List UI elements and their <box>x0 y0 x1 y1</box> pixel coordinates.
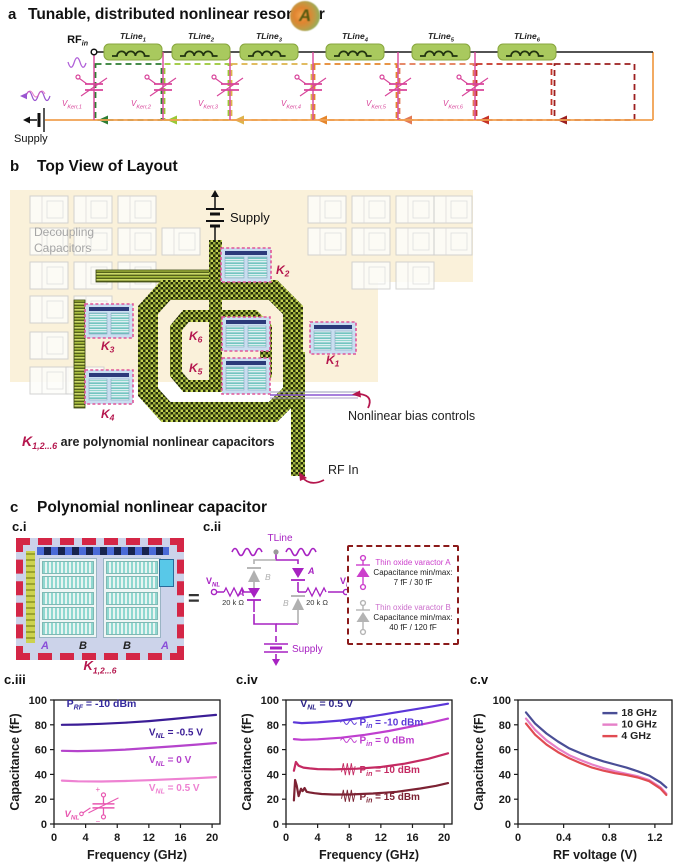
x-axis-label: Frequency (GHz) <box>87 848 187 862</box>
label-rest: = 0.5 V <box>165 783 200 794</box>
legend-label: 10 GHz <box>621 719 657 731</box>
k-block-fingers <box>248 367 266 390</box>
y-tick-label: 80 <box>35 720 47 732</box>
equivalent-circuit: TLine VNL VNL 20 k Ω 20 k Ω B A A B Supp… <box>204 530 356 670</box>
label-a-right: A <box>307 566 315 576</box>
legend-a-line2: Capacitance min/max: <box>373 568 453 578</box>
k-block-fingers <box>248 326 266 347</box>
label-rest: = 0 dBm <box>372 735 414 746</box>
decoupling-label-1: Decoupling <box>34 225 94 239</box>
varactor-label: VKerr,4 <box>281 99 301 111</box>
k-label: K4 <box>101 407 115 423</box>
label-sub: 3 <box>110 345 115 355</box>
panel-c-title: Polynomial nonlinear capacitor <box>37 499 267 517</box>
varactor-label: VKerr,6 <box>443 99 464 111</box>
label-sub: Kerr,1 <box>67 105 82 111</box>
label-sub: NL <box>156 733 165 740</box>
rf-feed <box>291 352 305 476</box>
left-metal-strip <box>74 300 85 408</box>
y-tick-label: 40 <box>499 769 511 781</box>
ci-caption-sub: 1,2...6 <box>93 666 117 676</box>
inset-label: VNL <box>64 809 79 822</box>
civ-label: c.iv <box>236 672 258 687</box>
decap-cell <box>396 228 434 255</box>
power-wave-icon <box>341 738 357 742</box>
output-arrow <box>20 93 27 99</box>
varactor-lead <box>80 79 88 85</box>
wire-left-branch-grey <box>254 560 276 564</box>
x-tick-label: 0.8 <box>602 832 617 844</box>
varactor-b-left <box>247 568 261 582</box>
x-tick-label: 0.4 <box>556 832 572 844</box>
varactor-terminal <box>76 75 80 79</box>
varactor-b-icon <box>353 599 373 637</box>
label-sub: 1 <box>335 359 340 369</box>
y-tick-label: 20 <box>267 794 279 806</box>
y-tick-label: 20 <box>35 794 47 806</box>
tline-label: TLine1 <box>120 31 146 44</box>
label-sub: Kerr,3 <box>203 105 219 111</box>
legend-b-line3: 40 fF / 120 fF <box>373 623 453 633</box>
kerr-section-box <box>555 64 635 120</box>
label-a-left: A <box>237 588 245 598</box>
annotation: VNL = 0.5 V <box>149 783 200 796</box>
legend-b-line2: Capacitance min/max: <box>373 613 453 623</box>
axes-frame <box>286 700 452 824</box>
kerr-section-box <box>96 64 162 120</box>
bias-arrow <box>360 394 370 408</box>
label-rest: = -10 dBm <box>372 717 423 728</box>
legend-entry-b: Thin oxide varactor B Capacitance min/ma… <box>353 599 453 637</box>
letter-b1: B <box>79 640 87 652</box>
label-b-right: B <box>283 598 289 608</box>
k-block-routing <box>226 361 266 365</box>
rf-in-label: RF In <box>328 463 359 477</box>
varactor-label: VKerr,1 <box>62 99 82 111</box>
label-b-left: B <box>265 572 271 582</box>
x-tick-label: 20 <box>206 832 218 844</box>
label-sub: NL <box>156 761 165 768</box>
decap-cell <box>30 262 68 289</box>
decap-cell <box>396 262 434 289</box>
y-tick-label: 40 <box>267 769 279 781</box>
y-axis-label: Capacitance (fF) <box>472 713 486 810</box>
terminal <box>101 815 105 819</box>
tline-node <box>273 549 278 554</box>
ci-caption: K1,2...6 <box>16 658 184 676</box>
varactor-legend: Thin oxide varactor A Capacitance min/ma… <box>347 545 459 645</box>
resistor-right <box>306 588 326 596</box>
tline-label: TLine5 <box>428 31 455 44</box>
supply-label: Supply <box>292 644 323 655</box>
k-block-fingers <box>111 313 129 334</box>
label-base: TLine <box>428 31 451 41</box>
label-base: TLine <box>120 31 143 41</box>
y-axis-label: Capacitance (fF) <box>8 713 22 810</box>
chip-layout: DecouplingCapacitorsSupplyK2K3K4K6K5K1No… <box>8 182 480 490</box>
k-block-fingers <box>111 379 129 400</box>
x-tick-label: 0 <box>515 832 521 844</box>
input-signal-icon <box>68 58 86 68</box>
x-axis-label: Frequency (GHz) <box>319 848 419 862</box>
decap-cell <box>396 196 434 223</box>
decap-cell <box>30 196 68 223</box>
decap-cell <box>30 367 68 394</box>
legend-a-title: Thin oxide varactor A <box>373 558 453 568</box>
equals-sign: = <box>188 588 200 611</box>
chart-svg: 048121620020406080100Frequency (GHz)Capa… <box>238 690 462 864</box>
data-curve <box>294 753 448 770</box>
label-sub: 5 <box>451 38 455 44</box>
minus-sign: − <box>95 817 100 826</box>
varactor-terminal <box>212 75 216 79</box>
ciii-label: c.iii <box>4 672 26 687</box>
rf-in-label: RFin <box>67 34 88 48</box>
x-tick-label: 16 <box>406 832 418 844</box>
vnl-terminal-left <box>211 589 216 594</box>
label-base: TLine <box>514 31 537 41</box>
label-sub: NL <box>307 704 316 711</box>
k-block-routing <box>225 251 267 255</box>
label-sub: NL <box>71 814 80 821</box>
badge-a: A <box>290 1 320 31</box>
decap-cell <box>118 228 156 255</box>
power-wave-icon <box>342 790 356 802</box>
decap-cell <box>74 196 112 223</box>
plus-sign: + <box>95 785 100 794</box>
decap-cell <box>308 228 346 255</box>
y-tick-label: 100 <box>261 695 279 707</box>
terminal <box>80 812 84 816</box>
k-block-fingers <box>314 331 331 350</box>
bias-label: Nonlinear bias controls <box>348 409 475 423</box>
varactor-a-icon <box>353 554 373 592</box>
label-sub: 1,2...6 <box>32 441 58 451</box>
label-rest: = -0.5 V <box>165 727 203 738</box>
y-tick-label: 0 <box>273 819 279 831</box>
tline-wave-left <box>232 549 262 556</box>
y-tick-label: 80 <box>267 720 279 732</box>
y-tick-label: 80 <box>499 720 511 732</box>
plot-capacitance-vs-freq-power: 048121620020406080100Frequency (GHz)Capa… <box>238 690 462 867</box>
kerr-section-box <box>477 64 552 120</box>
label-rest: = 0 V <box>165 755 192 766</box>
varactor-label: VKerr,3 <box>198 99 219 111</box>
decoupling-label-2: Capacitors <box>34 241 91 255</box>
tline-label: TLine4 <box>342 31 369 44</box>
varactor-terminal <box>380 75 384 79</box>
legend-a-line3: 7 fF / 30 fF <box>373 578 453 588</box>
label-base: RF <box>67 34 82 46</box>
res-left-value: 20 k Ω <box>222 598 244 607</box>
letter-a1: A <box>41 640 49 652</box>
label-sub: Kerr,6 <box>448 105 464 111</box>
legend-label: 18 GHz <box>621 707 657 719</box>
varactor-lead <box>384 79 392 85</box>
panel-c-letter: c <box>10 499 18 516</box>
decap-cell <box>30 296 68 323</box>
supply-feed <box>209 240 222 388</box>
varactor-terminal <box>145 75 149 79</box>
varactor-terminal <box>457 75 461 79</box>
annotation: VNL = 0 V <box>149 755 192 768</box>
varactor-a-right <box>291 568 305 580</box>
varactor-lead <box>299 79 307 85</box>
supply-battery <box>264 644 288 652</box>
annotation: Pin = -10 dBm <box>360 717 424 730</box>
k-block-routing <box>89 373 129 377</box>
decap-cell <box>352 262 390 289</box>
x-tick-label: 4 <box>83 832 90 844</box>
micrograph-top-routing <box>37 547 169 555</box>
letter-a2: A <box>161 640 169 652</box>
y-tick-label: 100 <box>493 695 511 707</box>
k-block-routing <box>226 320 266 324</box>
label-base: TLine <box>256 31 279 41</box>
legend-text-a: Thin oxide varactor A Capacitance min/ma… <box>373 558 453 588</box>
ci-label: c.i <box>12 519 26 534</box>
label-sub: 5 <box>198 367 203 377</box>
finger-bank-right <box>103 558 161 638</box>
letter-b2: B <box>123 640 131 652</box>
y-tick-label: 0 <box>41 819 47 831</box>
label-base: V <box>300 698 307 710</box>
plot-capacitance-vs-freq-bias: 048121620020406080100Frequency (GHz)Capa… <box>6 690 230 867</box>
label-sub: NL <box>156 789 165 796</box>
varactor-label: VKerr,5 <box>366 99 387 111</box>
x-tick-label: 4 <box>315 832 322 844</box>
supply-label: Supply <box>14 133 48 145</box>
decap-cell <box>308 196 346 223</box>
k-block-fingers <box>248 257 267 278</box>
chart-svg: 00.40.81.2020406080100RF voltage (V)Capa… <box>470 690 682 864</box>
x-tick-label: 12 <box>143 832 155 844</box>
k-block-fingers <box>89 379 107 400</box>
label-base: TLine <box>188 31 211 41</box>
y-tick-label: 0 <box>505 819 511 831</box>
k-block-fingers <box>226 367 244 390</box>
label-sub: Kerr,4 <box>286 105 301 111</box>
y-tick-label: 40 <box>35 769 47 781</box>
decap-cell <box>118 196 156 223</box>
k-block-fingers <box>335 331 352 350</box>
label-sub: 4 <box>109 413 115 423</box>
label-rest: = 15 dBm <box>372 792 420 803</box>
label-rest: are polynomial nonlinear capacitors <box>57 435 274 449</box>
x-tick-label: 12 <box>375 832 387 844</box>
x-axis-label: RF voltage (V) <box>553 848 637 862</box>
kerr-section-box <box>315 64 397 120</box>
label-sub: 3 <box>279 38 283 44</box>
k-caption: K1,2...6 are polynomial nonlinear capaci… <box>22 433 275 451</box>
x-tick-label: 0 <box>283 832 289 844</box>
label-rest: = -10 dBm <box>83 698 136 710</box>
y-tick-label: 60 <box>35 745 47 757</box>
legend-b-title: Thin oxide varactor B <box>373 603 453 613</box>
panel-b-letter: b <box>10 158 19 175</box>
x-tick-label: 20 <box>438 832 450 844</box>
legend-label: 4 GHz <box>621 730 651 742</box>
label-base: P <box>67 698 74 710</box>
micrograph-metal-bar <box>26 551 35 643</box>
battery-arrow <box>23 117 30 124</box>
annotation: Pin = 0 dBm <box>360 735 415 748</box>
data-curve <box>62 715 216 725</box>
tline-label: TLine3 <box>256 31 283 44</box>
chart-svg: 048121620020406080100Frequency (GHz)Capa… <box>6 690 230 864</box>
varactor-b-right <box>291 596 305 610</box>
y-tick-label: 20 <box>499 794 511 806</box>
decap-cell <box>352 228 390 255</box>
kerr-section-box <box>400 64 474 120</box>
y-tick-label: 60 <box>267 745 279 757</box>
k-block-routing <box>89 307 129 311</box>
label-sub: 6 <box>537 38 541 44</box>
x-tick-label: 0 <box>51 832 57 844</box>
decap-cell <box>162 228 200 255</box>
label-rest: = 0.5 V <box>317 698 353 710</box>
k-block-routing <box>314 325 352 329</box>
annotation: VNL = -0.5 V <box>149 727 203 740</box>
capacitor-micrograph: A B B A <box>16 538 184 660</box>
decap-cell <box>30 332 68 359</box>
label-base: TLine <box>342 31 365 41</box>
axes-frame <box>54 700 220 824</box>
terminal <box>101 793 105 797</box>
y-tick-label: 100 <box>29 695 47 707</box>
decap-cell <box>434 196 472 223</box>
x-tick-label: 16 <box>174 832 186 844</box>
vnl-left-label: VNL <box>206 576 220 589</box>
tline-label: TLine <box>267 533 292 544</box>
ci-caption-base: K <box>83 658 92 673</box>
varactor-inset-icon: +−VNL <box>64 785 118 826</box>
varactor-label: VKerr,2 <box>131 99 151 111</box>
panel-b-title: Top View of Layout <box>37 158 178 176</box>
varactor-lead <box>149 79 157 85</box>
varactor-lead <box>216 79 224 85</box>
x-tick-label: 1.2 <box>647 832 662 844</box>
x-tick-label: 8 <box>114 832 120 844</box>
rf-in-node <box>91 49 97 55</box>
decap-cell <box>352 196 390 223</box>
tline-label: TLine6 <box>514 31 541 44</box>
label-sub: 6 <box>198 335 203 345</box>
label-sub: 4 <box>364 38 369 44</box>
tline-label: TLine2 <box>188 31 215 44</box>
label-rest: = 10 dBm <box>372 765 420 776</box>
legend-text-b: Thin oxide varactor B Capacitance min/ma… <box>373 603 453 633</box>
data-curve <box>62 777 216 781</box>
kerr-section-box <box>165 64 229 120</box>
kerr-section-box <box>232 64 312 120</box>
varactor-lead <box>461 79 469 85</box>
k-block-fingers <box>226 326 244 347</box>
varactor-terminal <box>295 75 299 79</box>
label-sub: in <box>82 41 88 48</box>
data-curve <box>62 743 216 751</box>
decap-cell <box>434 228 472 255</box>
label-sub: Kerr,5 <box>371 105 387 111</box>
legend-entry-a: Thin oxide varactor A Capacitance min/ma… <box>353 554 453 592</box>
y-axis-label: Capacitance (fF) <box>240 713 254 810</box>
label-sub: 2 <box>284 269 290 279</box>
resonator-schematic: VKerr,1VKerr,2VKerr,3VKerr,4VKerr,5VKerr… <box>8 30 678 148</box>
figure-canvas: a Tunable, distributed nonlinear resonat… <box>0 0 685 867</box>
panel-a-letter: a <box>8 6 16 23</box>
y-tick-label: 60 <box>499 745 511 757</box>
badge-a-letter: A <box>299 6 311 26</box>
wire-bottom-left <box>254 614 276 632</box>
k-block-fingers <box>225 257 244 278</box>
tline-wave-right <box>286 549 316 556</box>
res-right-value: 20 k Ω <box>306 598 328 607</box>
label-sub: 1 <box>143 38 146 44</box>
k-block-fingers <box>89 313 107 334</box>
finger-bank-left <box>39 558 97 638</box>
x-tick-label: 8 <box>346 832 352 844</box>
supply-label: Supply <box>230 210 270 225</box>
label-sub: Kerr,2 <box>136 105 151 111</box>
varactor-a-left <box>247 588 261 600</box>
micrograph-via-block <box>159 559 174 587</box>
label-sub: 2 <box>210 38 215 44</box>
panel-a-title: Tunable, distributed nonlinear resonator <box>28 6 325 24</box>
cv-label: c.v <box>470 672 488 687</box>
plot-capacitance-vs-rfvoltage: 00.40.81.2020406080100RF voltage (V)Capa… <box>470 690 682 867</box>
ground-arrow <box>272 659 280 666</box>
